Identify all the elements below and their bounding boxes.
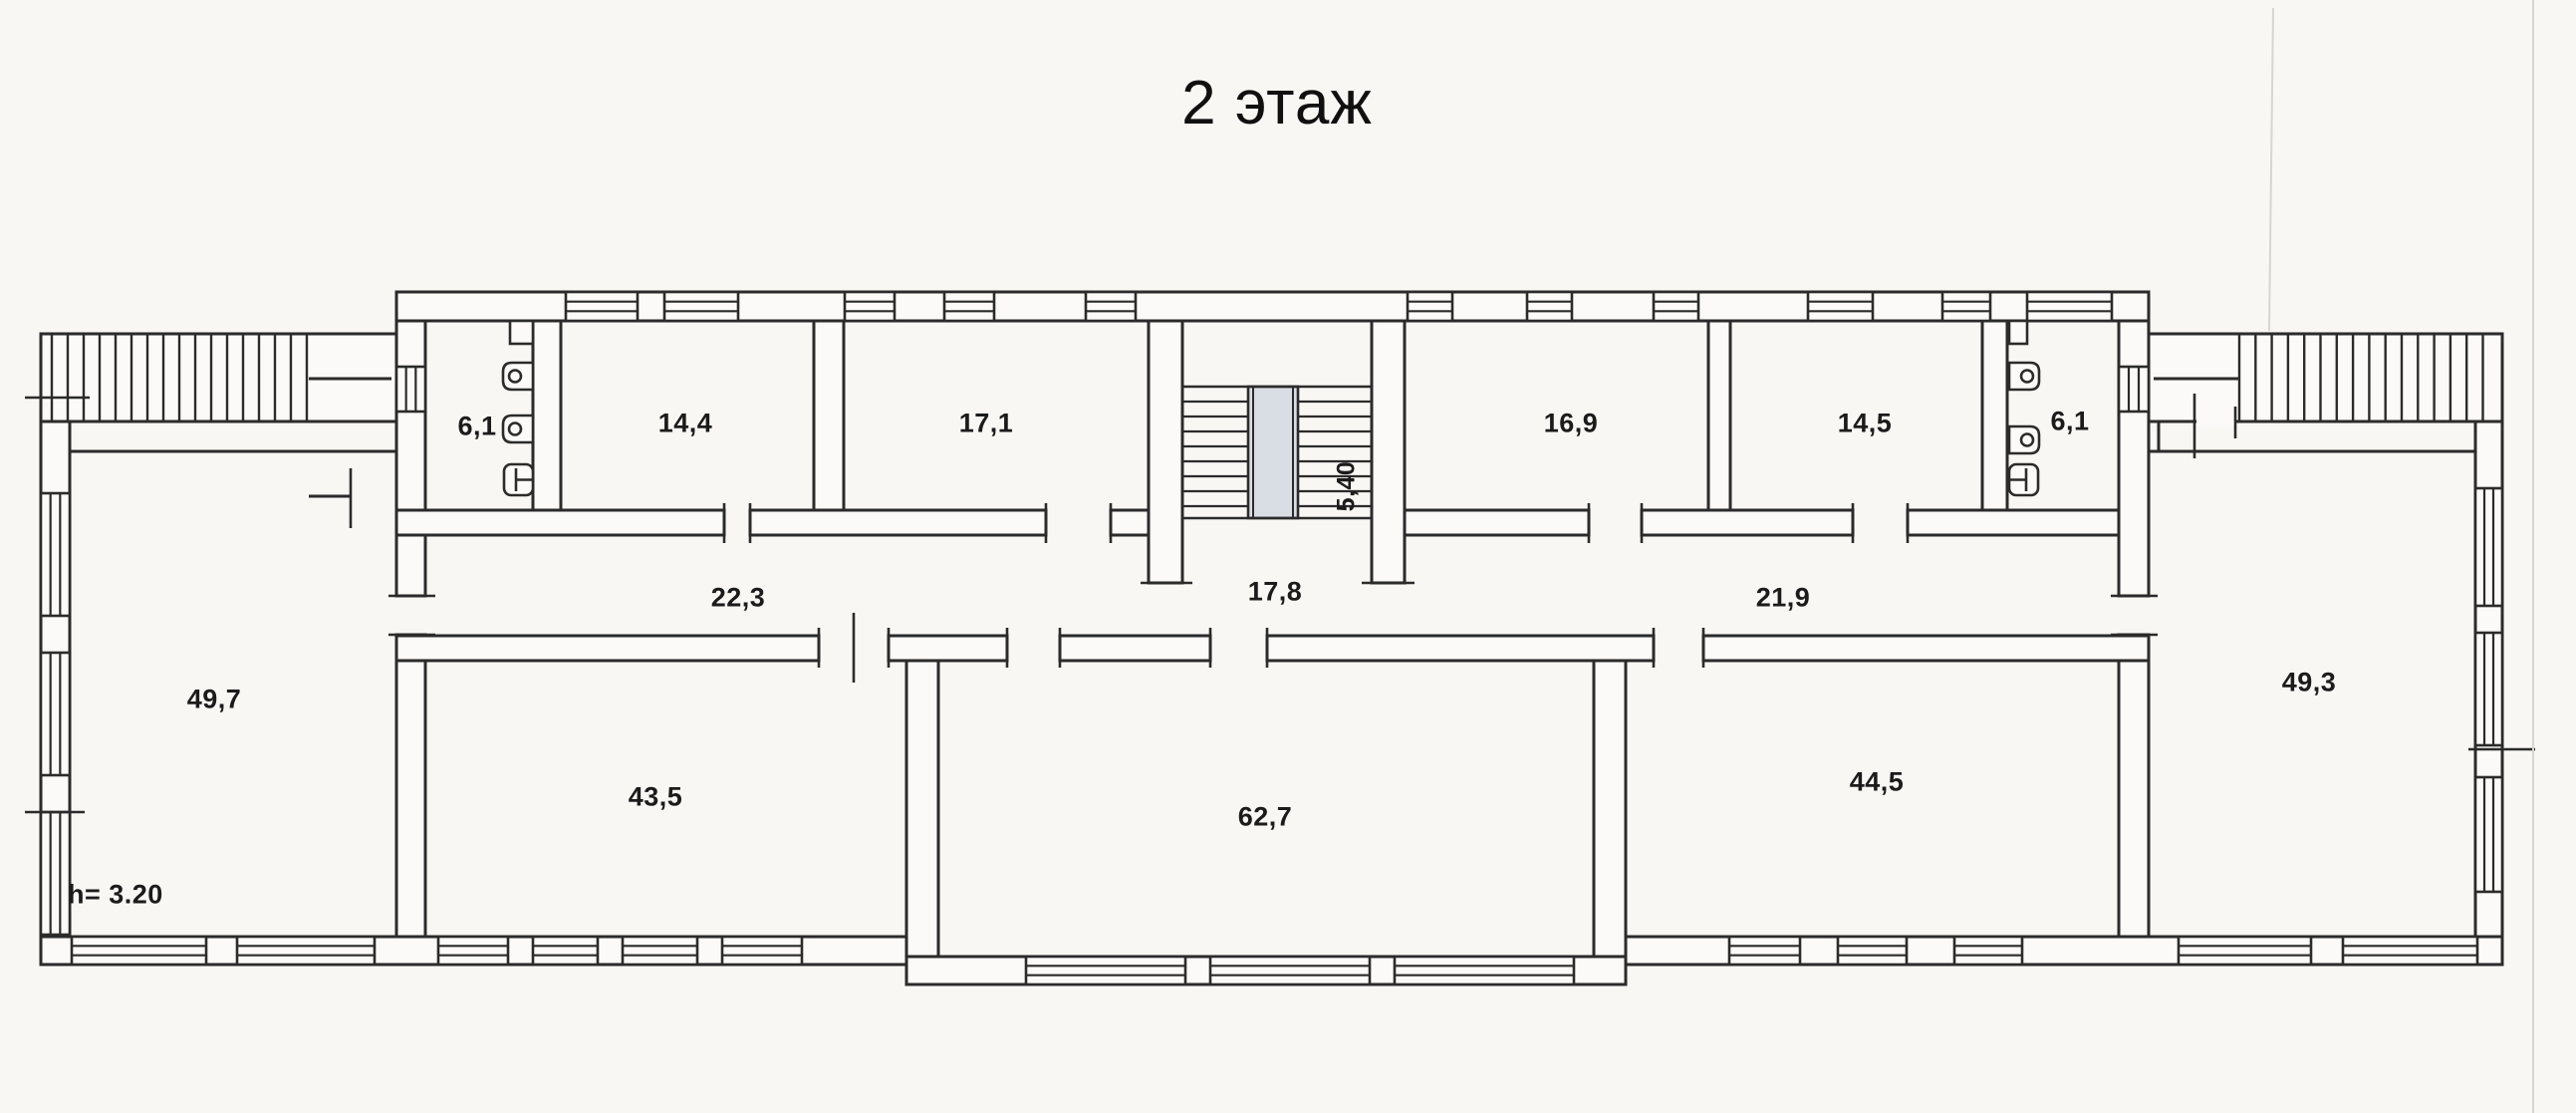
room-area-label-wc-left: 6,1 bbox=[457, 412, 496, 442]
floor-height-note: h= 3.20 bbox=[68, 880, 163, 911]
room-area-label-room-14-4: 14,4 bbox=[658, 409, 713, 439]
window-icon bbox=[41, 653, 70, 775]
room-area-label-corridor-left: 22,3 bbox=[711, 583, 766, 614]
toilet-icon bbox=[2009, 426, 2039, 453]
room-area-label-room-49-3: 49,3 bbox=[2282, 668, 2337, 698]
room-area-label-room-44-5: 44,5 bbox=[1850, 767, 1905, 798]
window-icon bbox=[533, 937, 598, 965]
window-icon bbox=[722, 937, 802, 965]
toilet-icon bbox=[2009, 363, 2039, 390]
window-icon bbox=[2027, 292, 2112, 321]
sink-icon bbox=[504, 464, 533, 495]
window-icon bbox=[1954, 937, 2022, 965]
window-icon bbox=[237, 937, 375, 965]
room-area-label-wc-right: 6,1 bbox=[2050, 407, 2089, 437]
stair-width-dimension: 5,40 bbox=[1333, 461, 1362, 512]
window-icon bbox=[1729, 937, 1800, 965]
room-area-label-room-14-5: 14,5 bbox=[1838, 409, 1893, 439]
room-area-label-corridor-right: 21,9 bbox=[1756, 583, 1811, 614]
window-icon bbox=[1210, 957, 1370, 984]
window-icon bbox=[2343, 937, 2477, 965]
window-icon bbox=[396, 367, 425, 412]
window-icon bbox=[2179, 937, 2311, 965]
toilet-icon bbox=[503, 363, 533, 390]
window-icon bbox=[438, 937, 508, 965]
room-area-label-room-62-7: 62,7 bbox=[1238, 802, 1293, 833]
room-area-label-room-49-7: 49,7 bbox=[187, 685, 242, 715]
window-icon bbox=[623, 937, 697, 965]
toilet-icon bbox=[503, 416, 533, 442]
window-icon bbox=[944, 292, 994, 321]
floor-plan: 2 этаж bbox=[0, 0, 2576, 1113]
room-area-label-stair-hall: 17,8 bbox=[1248, 577, 1303, 608]
window-icon bbox=[41, 812, 70, 935]
window-icon bbox=[845, 292, 895, 321]
window-icon bbox=[1808, 292, 1873, 321]
window-icon bbox=[566, 292, 638, 321]
window-icon bbox=[1086, 292, 1136, 321]
window-icon bbox=[1395, 957, 1574, 984]
window-icon bbox=[1942, 292, 1990, 321]
room-area-label-room-16-9: 16,9 bbox=[1544, 409, 1599, 439]
window-icon bbox=[41, 493, 70, 616]
window-icon bbox=[1026, 957, 1185, 984]
sink-icon bbox=[2009, 464, 2038, 495]
window-icon bbox=[2475, 777, 2502, 892]
window-icon bbox=[1527, 292, 1572, 321]
window-icon bbox=[2475, 633, 2502, 745]
room-area-label-room-43-5: 43,5 bbox=[629, 782, 683, 813]
window-icon bbox=[1654, 292, 1698, 321]
room-area-label-room-17-1: 17,1 bbox=[959, 409, 1014, 439]
window-icon bbox=[1408, 292, 1452, 321]
window-icon bbox=[2475, 488, 2502, 606]
window-icon bbox=[1838, 937, 1907, 965]
vent-shaft-icon bbox=[2009, 321, 2027, 344]
floor-plan-drawing bbox=[0, 0, 2576, 1113]
window-icon bbox=[2119, 367, 2149, 412]
window-icon bbox=[72, 937, 206, 965]
vent-shaft-icon bbox=[510, 321, 533, 344]
window-icon bbox=[664, 292, 738, 321]
